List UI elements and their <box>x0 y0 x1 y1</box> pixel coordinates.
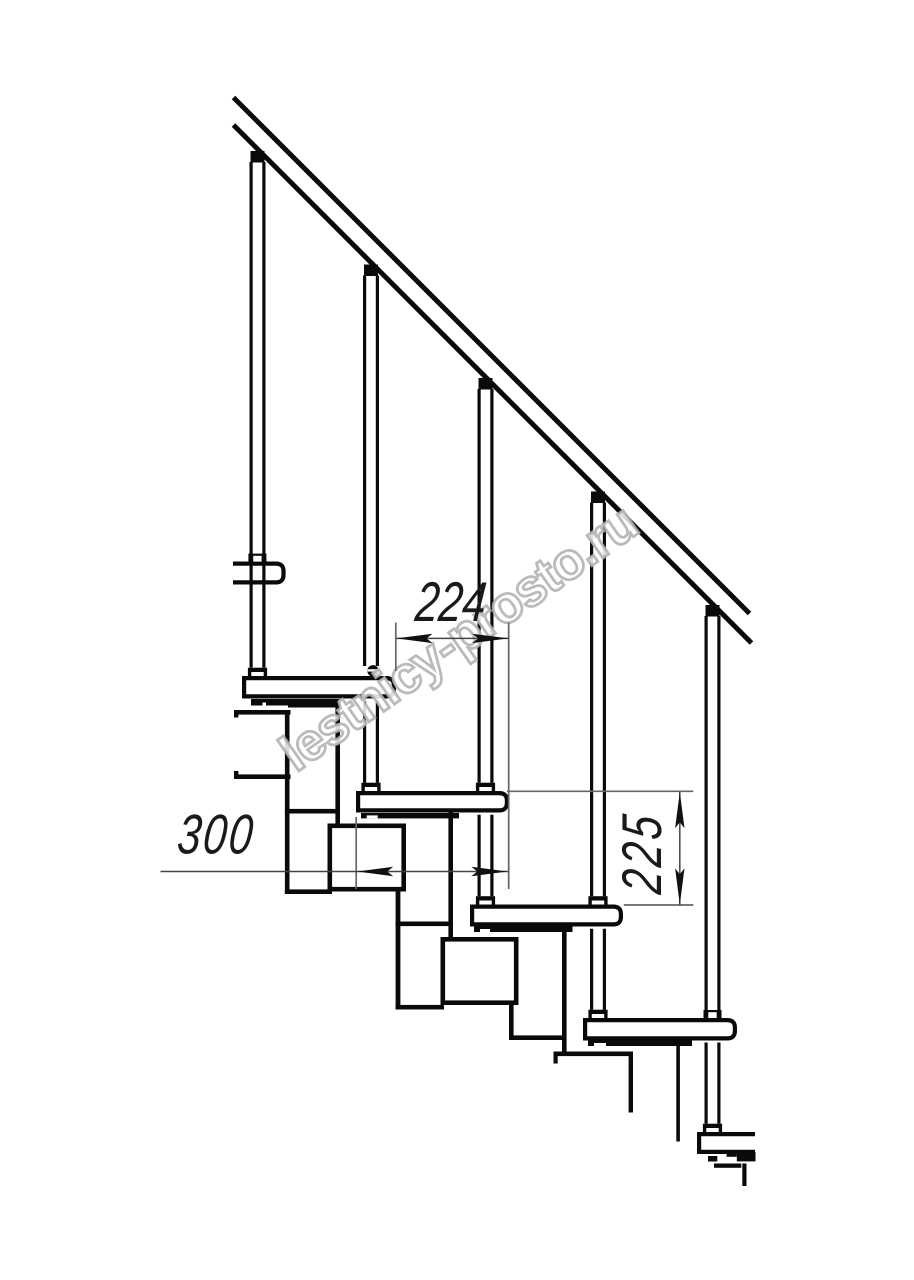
svg-text:225: 225 <box>610 808 673 897</box>
svg-text:300: 300 <box>175 803 258 866</box>
svg-text:224: 224 <box>412 570 490 633</box>
